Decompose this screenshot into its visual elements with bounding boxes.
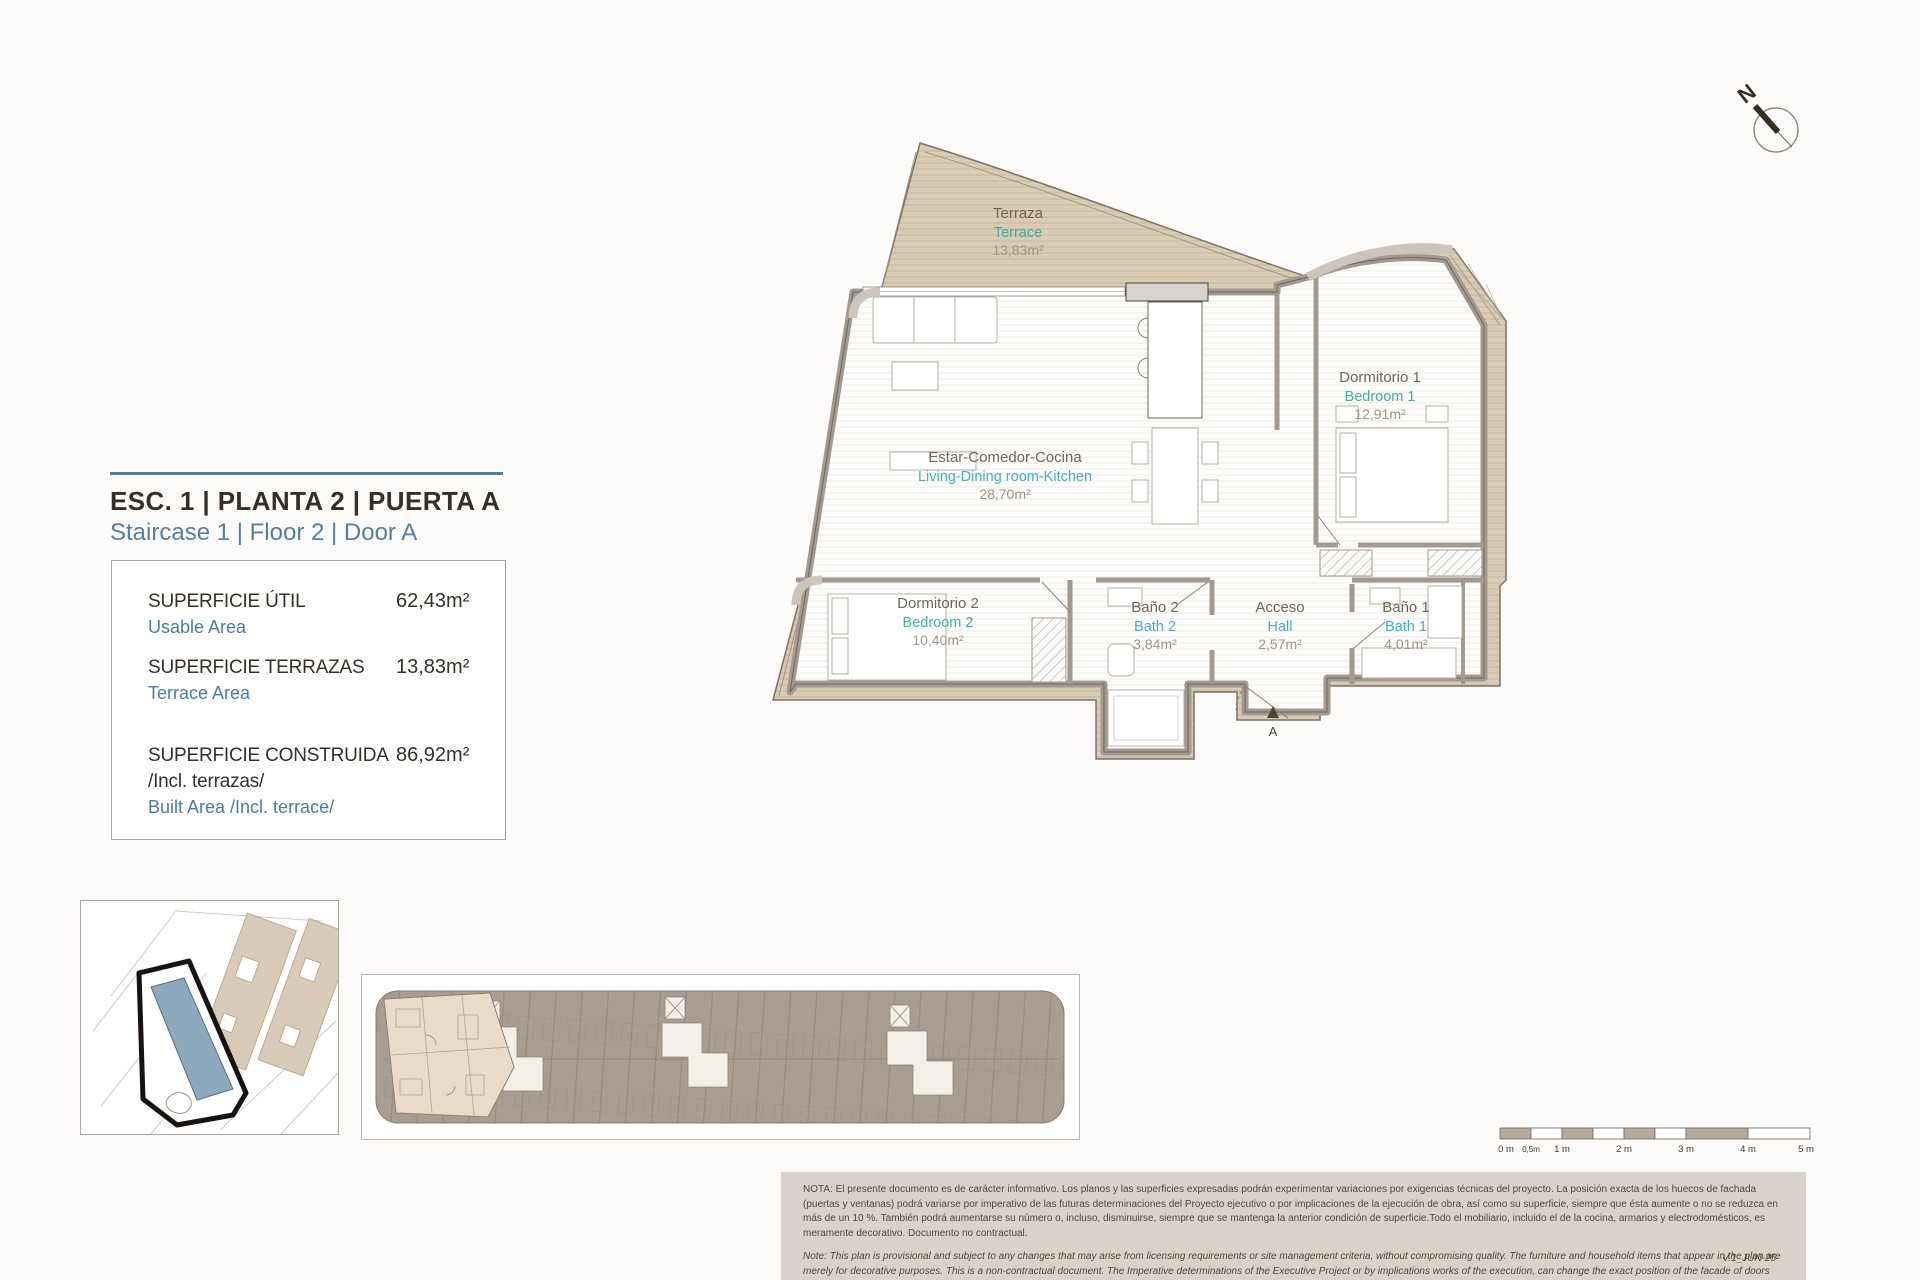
bath2-toilet xyxy=(1108,644,1134,676)
bath1-shower xyxy=(1428,586,1462,638)
svg-text:4 m: 4 m xyxy=(1740,1144,1756,1155)
scale-bar: 0 m 0,5m 1 m 2 m 3 m 4 m 5 m xyxy=(1496,1126,1816,1160)
coffee-table xyxy=(892,362,938,390)
usable-area-label-en: Usable Area xyxy=(148,617,246,638)
usable-area-value: 62,43m² xyxy=(396,590,469,613)
apartment-floor-plan: Terraza Terrace 13,83m² Estar-Comedor-Co… xyxy=(740,100,1530,780)
svg-text:3,84m²: 3,84m² xyxy=(1133,636,1177,652)
svg-text:5 m: 5 m xyxy=(1798,1144,1814,1155)
built-area-label-es: SUPERFICIE CONSTRUIDA xyxy=(148,745,389,767)
svg-text:Dormitorio 2: Dormitorio 2 xyxy=(897,595,979,612)
terrace-area-label-es: SUPERFICIE TERRAZAS xyxy=(148,657,365,679)
svg-text:4,01m²: 4,01m² xyxy=(1384,636,1428,652)
svg-text:Living-Dining room-Kitchen: Living-Dining room-Kitchen xyxy=(918,469,1092,485)
svg-text:Bath 2: Bath 2 xyxy=(1134,619,1176,635)
svg-text:Baño 2: Baño 2 xyxy=(1131,599,1179,616)
bath1-tub xyxy=(1362,648,1456,678)
site-plan-map xyxy=(80,900,339,1135)
shower xyxy=(1108,690,1184,746)
svg-text:Bedroom 1: Bedroom 1 xyxy=(1345,389,1416,405)
label-bath2: Baño 2 Bath 2 3,84m² xyxy=(1131,599,1179,652)
title-divider xyxy=(110,472,503,475)
svg-text:13,83m²: 13,83m² xyxy=(992,242,1044,258)
svg-text:Dormitorio 1: Dormitorio 1 xyxy=(1339,369,1421,386)
north-compass-icon: N xyxy=(1728,68,1818,168)
svg-text:2 m: 2 m xyxy=(1616,1144,1632,1155)
terrace-area-label-en: Terrace Area xyxy=(148,683,250,704)
svg-text:12,91m²: 12,91m² xyxy=(1354,406,1406,422)
floor-plan-sheet: ESC. 1 | PLANTA 2 | PUERTA A Staircase 1… xyxy=(0,0,1920,1280)
north-label: N xyxy=(1733,79,1761,108)
area-table: SUPERFICIE ÚTIL 62,43m² Usable Area SUPE… xyxy=(111,560,506,840)
legal-notes-panel: NOTA: El presente documento es de caráct… xyxy=(781,1172,1806,1280)
note-spanish: NOTA: El presente documento es de caráct… xyxy=(803,1183,1784,1241)
wall-pier xyxy=(1126,283,1208,301)
svg-text:Terrace: Terrace xyxy=(994,225,1042,241)
svg-text:Acceso: Acceso xyxy=(1255,599,1304,616)
sofa xyxy=(873,297,997,343)
page-subtitle: Staircase 1 | Floor 2 | Door A xyxy=(110,519,417,547)
plan-version: V.1_JUN-25 xyxy=(1722,1253,1776,1264)
pool xyxy=(166,1093,191,1114)
built-area-value: 86,92m² xyxy=(396,744,469,767)
svg-text:Terraza: Terraza xyxy=(993,205,1044,222)
svg-text:0 m: 0 m xyxy=(1498,1144,1514,1155)
kitchen-island xyxy=(1148,302,1202,418)
svg-text:1 m: 1 m xyxy=(1554,1144,1570,1155)
built-area-label-es2: /Incl. terrazas/ xyxy=(148,771,264,793)
label-bath1: Baño 1 Bath 1 4,01m² xyxy=(1382,599,1430,652)
svg-text:Baño 1: Baño 1 xyxy=(1382,599,1430,616)
label-terrace: Terraza Terrace 13,83m² xyxy=(992,205,1044,258)
svg-text:28,70m²: 28,70m² xyxy=(979,486,1031,502)
dining-table xyxy=(1152,428,1198,524)
svg-text:Estar-Comedor-Cocina: Estar-Comedor-Cocina xyxy=(928,449,1082,466)
svg-text:Bath 1: Bath 1 xyxy=(1385,619,1427,635)
closet xyxy=(1032,618,1066,682)
wardrobe xyxy=(1428,550,1482,576)
svg-text:Bedroom 2: Bedroom 2 xyxy=(903,615,974,631)
terrace-area-value: 13,83m² xyxy=(396,656,469,679)
entrance-letter: A xyxy=(1269,724,1278,739)
built-area-label-en: Built Area /Incl. terrace/ xyxy=(148,797,334,818)
scale-labels: 0 m 0,5m 1 m 2 m 3 m 4 m 5 m xyxy=(1498,1144,1814,1155)
svg-text:3 m: 3 m xyxy=(1678,1144,1694,1155)
svg-text:Hall: Hall xyxy=(1268,619,1293,635)
page-title: ESC. 1 | PLANTA 2 | PUERTA A xyxy=(110,486,500,517)
highlighted-unit xyxy=(384,993,514,1117)
usable-area-label-es: SUPERFICIE ÚTIL xyxy=(148,591,305,613)
svg-text:10,40m²: 10,40m² xyxy=(912,632,964,648)
svg-text:2,57m²: 2,57m² xyxy=(1258,636,1302,652)
building-floor-overview xyxy=(361,974,1080,1140)
wardrobe xyxy=(1320,550,1372,576)
note-english: Note: This plan is provisional and subje… xyxy=(803,1250,1784,1280)
svg-text:0,5m: 0,5m xyxy=(1522,1145,1540,1154)
